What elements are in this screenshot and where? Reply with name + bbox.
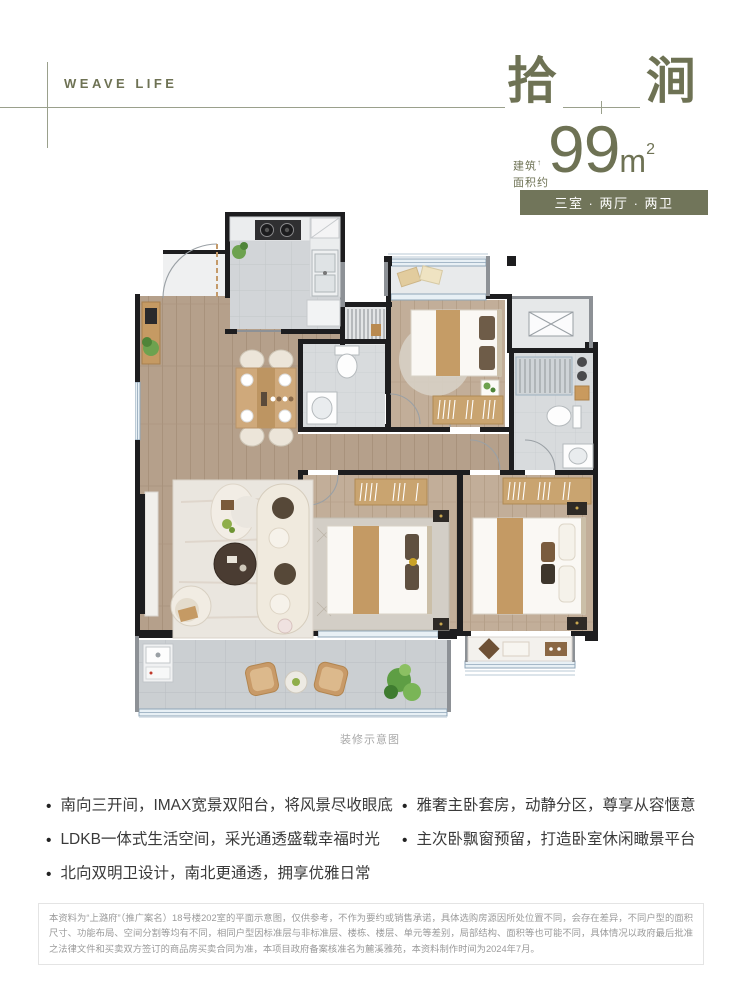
bay-window-seat: [468, 637, 572, 661]
brand-rule-vertical: [47, 62, 48, 148]
feature-item: •北向双明卫设计，南北更通透，拥享优雅日常: [46, 861, 370, 883]
feature-item: •南向三开间，IMAX宽景双阳台，将风景尽收眼底: [46, 793, 393, 815]
dishwasher-icon: [307, 300, 340, 326]
area-label: 建筑↑ 面积约: [513, 157, 549, 192]
feature-item: •主次卧飘窗预留，打造卧室休闲瞰景平台: [402, 827, 695, 849]
toilet-icon: [337, 354, 357, 378]
brand-logo-text: WEAVE LIFE: [64, 76, 177, 91]
feature-item: •雅奢主卧套房，动静分区，尊享从容惬意: [402, 793, 695, 815]
coffee-table-icon: [214, 543, 256, 585]
area-value: 99m2: [548, 116, 655, 182]
feature-item: •LDKB一体式生活空间，采光通透盛载幸福时光: [46, 827, 380, 849]
bullet-icon: •: [46, 832, 51, 850]
project-title-char-2: 涧: [646, 56, 696, 106]
bullet-icon: •: [46, 866, 51, 884]
area-note-arrow: ↑: [537, 158, 542, 167]
ac-platform: [529, 312, 573, 336]
area-unit: m2: [619, 143, 655, 179]
tv-icon: [139, 494, 145, 614]
bullet-icon: •: [402, 832, 407, 850]
floorplan-drawing: [135, 212, 620, 718]
project-title-char-1: 拾: [507, 56, 557, 106]
header-rule: [0, 107, 505, 108]
plan-caption: 装修示意图: [0, 731, 740, 747]
flyer-page: WEAVE LIFE 拾 涧 建筑↑ 面积约 99m2 三室 · 两厅 · 两卫: [0, 0, 740, 987]
toilet2-icon: [547, 406, 571, 426]
floorplan: [135, 212, 620, 718]
entry-cabinet: [142, 302, 160, 364]
bullet-icon: •: [402, 798, 407, 816]
area-number: 99: [548, 112, 619, 186]
disclaimer-text: 本资料为“上潞府”（推广案名）18号楼202室的平面示意图，仅供参考，不作为要约…: [38, 903, 704, 965]
bullet-icon: •: [46, 798, 51, 816]
nook-box: [371, 324, 381, 336]
master-wardrobe-icon: [503, 478, 591, 504]
entry-recess-floor: [163, 254, 225, 296]
